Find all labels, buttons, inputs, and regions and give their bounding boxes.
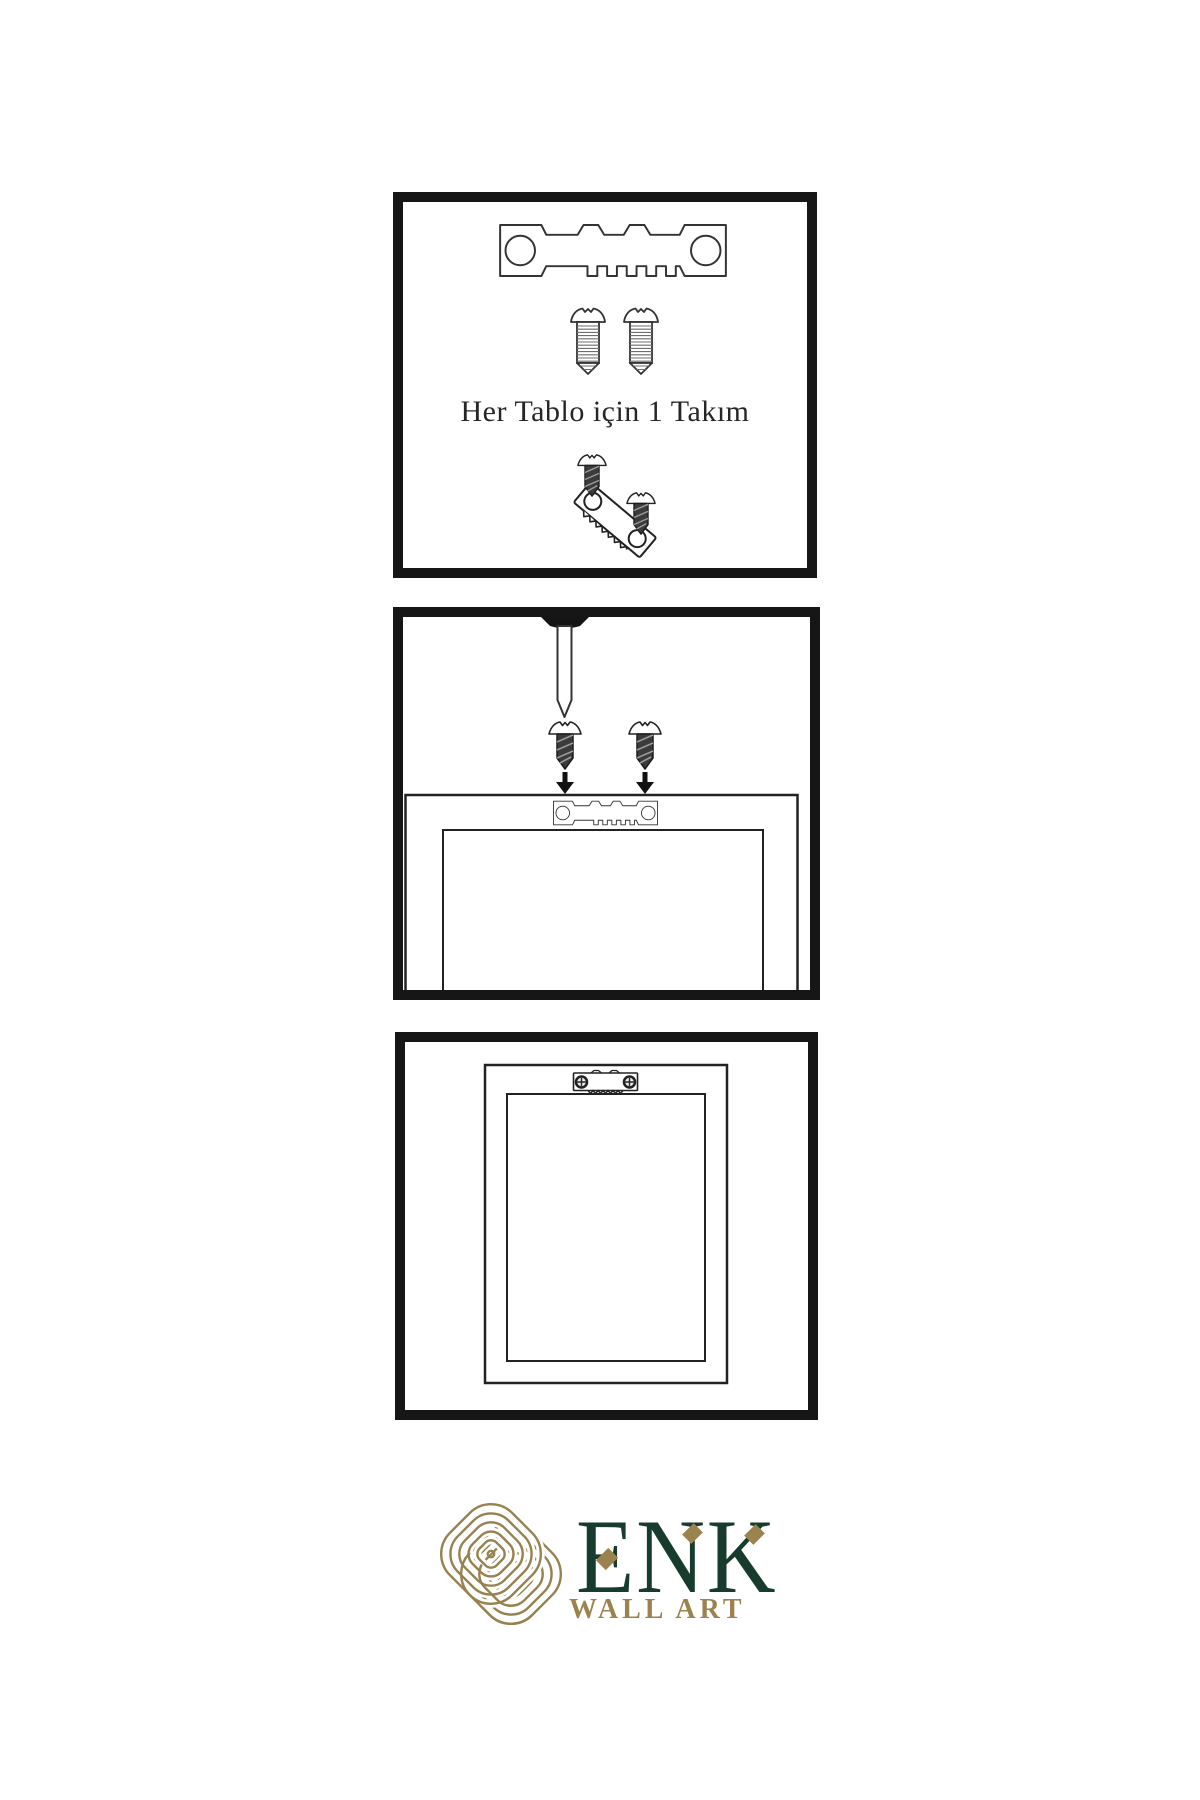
wall-nail-icon [541, 617, 589, 717]
mounting-diagram [403, 617, 810, 990]
frame-back-with-sawtooth-hanger-icon [406, 795, 798, 990]
panel-step3-hung-frame [395, 1032, 818, 1420]
hung-frame-diagram [405, 1042, 808, 1410]
instruction-sheet: Her Tablo için 1 Takım [0, 0, 1200, 1800]
dark-screw-icon [629, 722, 661, 769]
kit-caption: Her Tablo için 1 Takım [403, 395, 807, 429]
arrow-down-icon [636, 772, 654, 794]
panel-step1-kit: Her Tablo için 1 Takım [393, 192, 817, 578]
brand-subtitle: WALL ART [569, 1596, 746, 1624]
frame-back-with-mounted-hanger-icon [485, 1065, 727, 1383]
screw-icon [571, 309, 605, 375]
screw-icon [624, 309, 658, 375]
dark-screw-icon [549, 722, 581, 769]
arrow-down-icon [556, 772, 574, 794]
knot-logo-icon [437, 1500, 565, 1628]
sawtooth-hanger-icon [500, 225, 726, 276]
mounted-hanger-plate [574, 1071, 638, 1094]
panel-step2-mounting [393, 607, 820, 1000]
dark-screw-icon [578, 455, 606, 496]
kit-diagram [403, 202, 807, 568]
